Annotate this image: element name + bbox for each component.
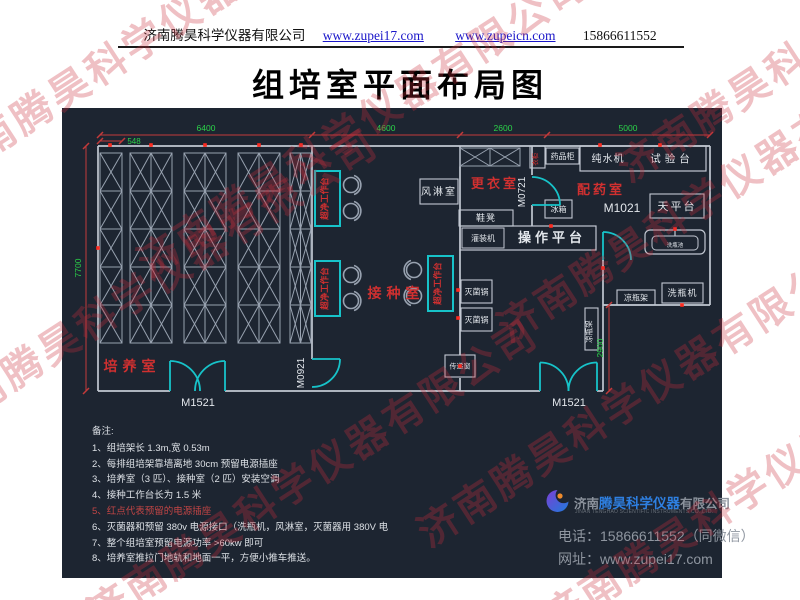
fixture-medicine-cabinet-label: 药品柜 [551, 151, 575, 161]
dimension-top-4600: 4600 [377, 123, 396, 133]
culture-rack [130, 153, 172, 343]
fixture-balance-table-label: 天平台 [658, 199, 697, 213]
dimension-top-6400: 6400 [197, 123, 216, 133]
fixture-wash-sink: 洗瓶池 [645, 230, 705, 254]
outlet-dot [456, 288, 460, 292]
note-line-3: 3、培养室（3 匹）、接种室（2 匹）安装空调 [92, 472, 452, 488]
fixture-clean-bench-label: 超净工作台 [320, 177, 330, 221]
fixture-air-shower-label: 风淋室 [421, 185, 457, 198]
door-label-m1521-left: M1521 [181, 397, 215, 409]
note-line-1: 1、组培架长 1.3m,宽 0.53m [92, 441, 452, 457]
outlet-dot [96, 246, 100, 250]
dimension-top-2600: 2600 [494, 123, 513, 133]
page: 济南腾昊科学仪器有限公司 www.zupei17.com www.zupeicn… [0, 0, 800, 600]
fixture-balance-table: 天平台 [650, 194, 704, 218]
culture-rack [460, 148, 520, 166]
fixture-shoe-bench: 鞋凳 [459, 210, 513, 226]
chair-icon [407, 263, 422, 278]
dimension-top-5000: 5000 [619, 123, 638, 133]
fixture-sterilizer-1-label: 灭菌锅 [465, 286, 489, 296]
note-line-7: 7、整个组培室预留电源功率 >60kw 即可 [92, 536, 452, 552]
fixture-fridge: 冰箱 [545, 200, 572, 218]
header-company-name: 济南腾昊科学仪器有限公司 [143, 28, 305, 43]
room-label-culture: 培养室 [104, 358, 161, 374]
header-link-zupei17[interactable]: www.zupei17.com [323, 28, 424, 43]
fixture-clean-bench: 超净工作台 [315, 171, 361, 226]
fixture-air-shower: 风淋室 [420, 179, 458, 204]
culture-rack [100, 153, 122, 343]
outlet-dot [598, 143, 602, 147]
culture-rack [184, 153, 226, 343]
culture-rack [290, 153, 311, 343]
header-divider [118, 46, 684, 48]
door-label-m1521-right: M1521 [552, 397, 586, 409]
chair-icon [344, 178, 359, 193]
dimension-left: 7700 [73, 258, 83, 277]
header-link-zupeicn[interactable]: www.zupeicn.com [455, 28, 555, 43]
fixture-test-bench-label: 试验台 [650, 152, 694, 165]
fixture-bottle-washer-label: 洗瓶机 [667, 287, 697, 298]
fixture-pure-water-label: 纯水机 [592, 152, 625, 165]
note-line-8: 8、培养室推拉门地轨和地面一平，方便小推车推送。 [92, 551, 452, 567]
outlet-dot [108, 143, 112, 147]
fixture-shoe-bench-label: 鞋凳 [476, 212, 496, 223]
culture-rack [238, 153, 280, 343]
door-culture-swing [312, 359, 340, 387]
dimension-rack-width: 548 [127, 137, 141, 146]
chair-icon [344, 204, 359, 219]
fixture-medicine-cabinet: 药品柜 [546, 148, 579, 164]
outlet-dot [149, 143, 153, 147]
notes-block: 备注: 1、组培架长 1.3m,宽 0.53m2、每排组培架靠墙离地 30cm … [92, 424, 452, 567]
chair-icon [344, 268, 359, 283]
door-dispensing-swing [603, 232, 631, 260]
outlet-dot [601, 266, 605, 270]
footer-website: 网址：www.zupei17.com [558, 549, 713, 569]
page-title: 组培室平面布局图 [0, 60, 800, 106]
footer-phone: 电话：15866611552（同微信） [558, 526, 755, 546]
door-double-right-swing [569, 363, 598, 392]
fixture-operation-platform: 灌装机操作平台 [460, 226, 596, 250]
room-label-changing: 更衣室 [471, 176, 519, 191]
fixture-wardrobe-label: 衣柜 [531, 152, 540, 166]
fixture-sterilizer-2-label: 灭菌锅 [465, 314, 489, 324]
outlet-dot [673, 227, 677, 231]
door-double-right-swing [540, 363, 569, 392]
fixture-bottle-rack-vertical-label: 凉瓶架 [584, 320, 594, 343]
door-label-m0921: M0921 [296, 357, 307, 388]
footer-company-en: JINAN TENGHAO SCIENTIFIC INSTRUMENTS CO.… [575, 509, 713, 515]
fixture-sterilizer-1: 灭菌锅 [461, 280, 492, 303]
fixture-bottle-rack-horizontal-label: 凉瓶架 [624, 292, 648, 302]
fixture-clean-bench: 超净工作台 [404, 256, 453, 311]
header-phone: 15866611552 [583, 28, 657, 43]
note-line-6: 6、灭菌器和预留 380v 电源接口（洗瓶机，风淋室，灭菌器用 380V 电 [92, 520, 452, 536]
room-label-dispensing: 配药室 [577, 182, 625, 197]
door-label-m1021: M1021 [604, 201, 641, 215]
outlet-dot [549, 224, 553, 228]
outlet-dot [203, 143, 207, 147]
company-logo [544, 488, 571, 515]
fixture-clean-bench-label: 超净工作台 [433, 262, 443, 306]
door-label-m0721: M0721 [517, 176, 528, 207]
document-header: 济南腾昊科学仪器有限公司 www.zupei17.com www.zupeicn… [0, 24, 800, 44]
fixture-wash-sink-label: 洗瓶池 [667, 241, 684, 249]
outlet-dot [658, 143, 662, 147]
fixture-clean-bench: 超净工作台 [315, 261, 361, 316]
fixture-bottle-washer: 洗瓶机 [662, 283, 703, 303]
chair-icon [344, 294, 359, 309]
fixture-operation-platform-label: 操作平台 [518, 230, 586, 245]
outlet-dot [458, 364, 462, 368]
fixture-filling-machine-label: 灌装机 [471, 233, 495, 243]
notes-heading: 备注: [92, 424, 452, 440]
outlet-dot [257, 143, 261, 147]
door-changing-swing [532, 177, 560, 205]
fixture-sterilizer-2: 灭菌锅 [461, 308, 492, 331]
floor-plan: 风淋室药品柜纯水机试验台天平台冰箱鞋凳灌装机操作平台灭菌锅灭菌锅传递窗凉瓶架凉瓶… [62, 108, 722, 578]
dimension-right: 2900 [595, 338, 605, 357]
outlet-dot [456, 316, 460, 320]
fixture-water-test-bench: 纯水机试验台 [580, 146, 706, 171]
note-line-5: 5、红点代表预留的电源插座 [92, 504, 452, 520]
outlet-dot [299, 143, 303, 147]
room-label-inoculation: 接种室 [368, 285, 425, 301]
fixture-clean-bench-label: 超净工作台 [320, 267, 330, 311]
note-line-4: 4、接种工作台长为 1.5 米 [92, 488, 452, 504]
note-line-2: 2、每排组培架靠墙离地 30cm 预留电源插座 [92, 457, 452, 473]
fixture-bottle-rack-horizontal: 凉瓶架 [617, 290, 655, 305]
outlet-dot [680, 303, 684, 307]
